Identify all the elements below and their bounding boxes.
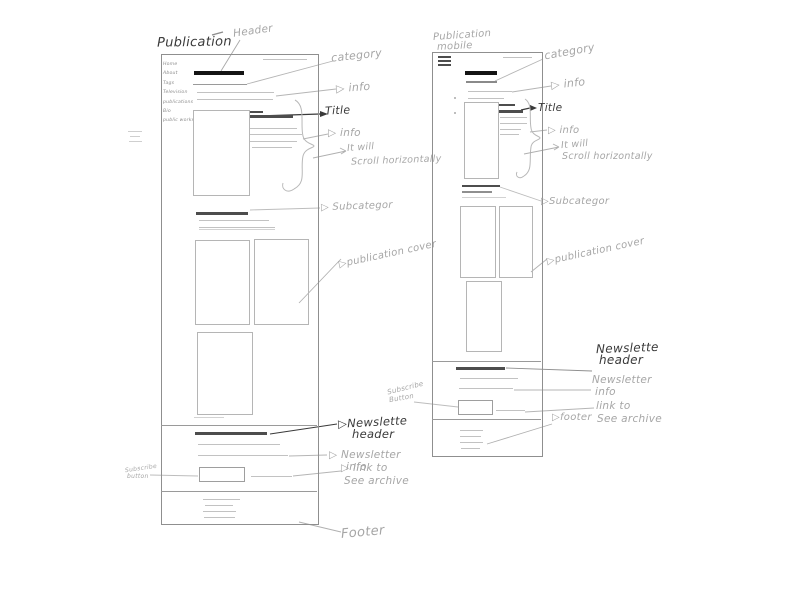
hamburger-menu-icon [438, 60, 451, 62]
desktop-info-line [197, 99, 273, 100]
desktop-archive-link-line [251, 476, 292, 477]
desktop-article-title-line [250, 111, 263, 113]
desktop-grid-top-line [199, 229, 275, 230]
desktop-article-cover-rect [193, 110, 250, 196]
mobile-cover-rect [460, 206, 496, 278]
mobile-topright-line [503, 57, 532, 58]
mobile-subcategory-line [462, 197, 506, 198]
m-subcategory-label: ▷Subcategor [541, 197, 609, 207]
desktop-small-line [194, 417, 224, 418]
m-subscribe-label-line2: Button [389, 393, 415, 404]
mobile-header-bar [465, 71, 497, 75]
m-info-top-label: ▷ info [551, 76, 586, 91]
m-archive-label-line2: See archive [597, 414, 662, 425]
desktop-footer-line [203, 511, 236, 512]
desktop-topright-line [263, 59, 307, 60]
mobile-footer-line [460, 430, 483, 431]
m-newsletter-info-label-line1: Newsletter [592, 375, 652, 386]
mobile-footer-line [461, 448, 480, 449]
mobile-footer-line [460, 436, 481, 437]
annotation-connectors [0, 0, 792, 612]
m-publication-cover-label: ▷publication cover [546, 237, 645, 267]
scroll-note-line1: It will [347, 142, 375, 153]
pencil-speck [454, 97, 456, 99]
desktop-newsletter-info-line [198, 444, 280, 445]
footer-label: Footer [341, 524, 386, 541]
desktop-article-info-line [250, 128, 297, 129]
desktop-cover-rect [195, 240, 250, 325]
desktop-article-info-line [250, 141, 297, 142]
m-archive-label-line1: link to [596, 401, 631, 412]
desktop-header-bar [194, 71, 244, 75]
hamburger-menu-icon [438, 56, 451, 58]
mobile-divider [432, 361, 541, 362]
m-title-label: Title [538, 103, 562, 114]
desktop-divider [161, 425, 317, 426]
desktop-article-info-line [252, 147, 292, 148]
mobile-newsletter-header-bar [456, 367, 505, 370]
desktop-divider [161, 491, 317, 492]
desktop-sketch-title: Publication [157, 35, 232, 49]
m-footer-label: ▷footer [552, 413, 592, 423]
sidebar-item-public-works: public works [163, 116, 194, 125]
desktop-category-line [193, 84, 247, 85]
subcategory-label: ▷ Subcategor [321, 201, 393, 213]
mobile-article-info-line [500, 134, 519, 135]
category-label: category [331, 47, 383, 63]
sidebar-item-television: Television [163, 88, 194, 97]
desktop-sidebar-nav: Home About Tags Television publications … [163, 60, 194, 126]
desktop-subcategory-line [199, 220, 269, 221]
m-scroll-note-line1: It will [561, 139, 589, 151]
mobile-article-title-line [499, 104, 515, 106]
info-top-label: ▷ info [336, 81, 371, 94]
hamburger-menu-icon [438, 64, 451, 66]
mobile-info-line [468, 91, 512, 92]
newsletter-header-label-line2: header [352, 429, 394, 441]
pencil-speck [454, 112, 456, 114]
desktop-footer-line [205, 505, 233, 506]
newsletter-info-label-line1: ▷ Newsletter [329, 450, 401, 461]
desktop-article-title-line [250, 115, 293, 118]
desktop-subcategory-line [199, 227, 275, 228]
sidebar-item-bio: Bio [163, 107, 194, 116]
sidebar-item-home: Home [163, 60, 194, 69]
desktop-subscribe-button-rect [199, 467, 245, 482]
mobile-info-line [468, 98, 504, 99]
desktop-newsletter-header-bar [195, 432, 267, 435]
desktop-cover-rect [197, 332, 253, 415]
m-scroll-note-line2: Scroll horizontally [562, 152, 653, 162]
m-newsletter-header-label-line2: header [599, 354, 643, 366]
mobile-footer-line [460, 442, 483, 443]
desktop-footer-line [203, 499, 240, 500]
mobile-newsletter-info-line [460, 378, 518, 379]
subscribe-label-line2: button [127, 474, 149, 480]
archive-label-line2: See archive [344, 476, 409, 487]
mobile-archive-link-line [496, 410, 525, 411]
header-label: Header [232, 23, 273, 39]
margin-note-scribble [128, 131, 142, 132]
publication-cover-label: ▷publication cover [338, 240, 437, 270]
sidebar-item-tags: Tags [163, 79, 194, 88]
m-category-label: category [543, 42, 595, 62]
mobile-article-title-line [499, 110, 523, 113]
mobile-article-info-line [500, 117, 527, 118]
sidebar-item-about: About [163, 69, 194, 78]
mobile-cover-rect [499, 206, 533, 278]
title-label: Title [325, 104, 351, 116]
sidebar-item-publications: publications [163, 98, 194, 107]
desktop-footer-line [204, 517, 235, 518]
desktop-article-info-line [250, 134, 302, 135]
scroll-note-line2: Scroll horizontally [351, 154, 442, 167]
mobile-article-cover-rect [464, 102, 499, 179]
desktop-subcategory-bar [196, 212, 248, 215]
archive-label-line1: ▷ link to [341, 463, 388, 474]
desktop-cover-rect [254, 239, 309, 325]
info-article-label: ▷ info [328, 128, 361, 139]
desktop-newsletter-info-line [198, 455, 288, 456]
mobile-article-info-line [500, 123, 527, 124]
wireframe-sketch-canvas: Publication Home About Tags Television p… [0, 0, 792, 612]
margin-note-scribble [130, 136, 140, 137]
mobile-subcategory-bar [462, 185, 500, 187]
mobile-newsletter-info-line [459, 388, 513, 389]
mobile-divider [432, 419, 541, 420]
mobile-subcategory-line [462, 191, 492, 193]
mobile-category-line [466, 81, 497, 83]
m-newsletter-info-label-line2: info [595, 387, 616, 398]
mobile-subscribe-button-rect [458, 400, 493, 415]
mobile-cover-rect [466, 281, 502, 352]
margin-note-scribble [129, 141, 142, 142]
m-info-article-label: ▷ info [548, 126, 579, 136]
desktop-info-line [197, 92, 274, 93]
mobile-article-info-line [500, 129, 521, 130]
